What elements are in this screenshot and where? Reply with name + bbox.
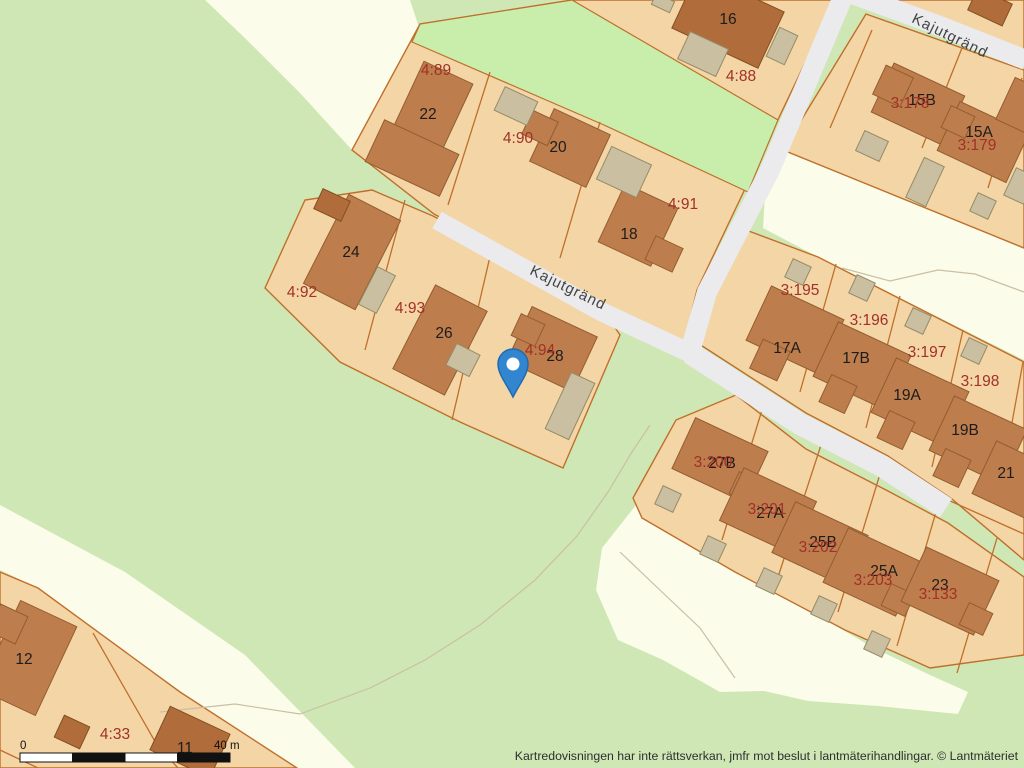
attribution-text: Kartredovisningen har inte rättsverkan, … bbox=[515, 749, 1019, 763]
parcel-number-label: 4:92 bbox=[287, 284, 317, 301]
house-number-label: 17B bbox=[842, 350, 870, 367]
parcel-number-label: 3:179 bbox=[958, 137, 997, 154]
house-number-label: 19A bbox=[893, 387, 921, 404]
parcel-number-label: 4:89 bbox=[421, 62, 451, 79]
parcel-number-label: 3:202 bbox=[799, 539, 838, 556]
scale-segment bbox=[178, 753, 231, 762]
house-number-label: 18 bbox=[620, 226, 637, 243]
map-viewport[interactable]: Kajutgränd Kajutgränd 16 22 20 18 24 26 … bbox=[0, 0, 1024, 768]
parcel-number-label: 4:33 bbox=[100, 726, 130, 743]
scale-segment bbox=[125, 753, 178, 762]
parcel-number-label: 3:200 bbox=[694, 454, 733, 471]
parcel-number-label: 4:91 bbox=[668, 196, 698, 213]
house-number-label: 21 bbox=[997, 465, 1014, 482]
parcel-number-label: 4:88 bbox=[726, 68, 756, 85]
parcel-number-label: 3:198 bbox=[961, 373, 1000, 390]
scale-segment bbox=[20, 753, 73, 762]
parcel-number-label: 4:94 bbox=[525, 342, 556, 359]
parcel-number-label: 3:203 bbox=[854, 572, 893, 589]
house-number-label: 22 bbox=[419, 106, 436, 123]
house-number-label: 26 bbox=[435, 325, 452, 342]
house-number-label: 16 bbox=[719, 11, 736, 28]
house-number-label: 20 bbox=[549, 139, 567, 156]
house-number-label: 24 bbox=[342, 244, 360, 261]
house-number-label: 12 bbox=[15, 651, 32, 668]
parcel-number-label: 3:201 bbox=[748, 501, 787, 518]
scale-start-label: 0 bbox=[20, 740, 26, 752]
scale-segment bbox=[73, 753, 126, 762]
parcel-number-label: 3:197 bbox=[908, 344, 947, 361]
scale-end-label: 40 m bbox=[214, 740, 240, 752]
parcel-number-label: 3:196 bbox=[850, 312, 889, 329]
house-number-label: 17A bbox=[773, 340, 801, 357]
house-number-label: 19B bbox=[951, 422, 979, 439]
pin-center-dot bbox=[507, 358, 520, 371]
cadastral-map[interactable]: Kajutgränd Kajutgränd 16 22 20 18 24 26 … bbox=[0, 0, 1024, 768]
parcel-number-label: 4:90 bbox=[503, 130, 534, 147]
parcel-number-label: 3:195 bbox=[781, 282, 820, 299]
parcel-number-label: 4:93 bbox=[395, 300, 425, 317]
parcel-number-label: 3:178 bbox=[891, 95, 930, 112]
parcel-number-label: 3:133 bbox=[919, 586, 958, 603]
